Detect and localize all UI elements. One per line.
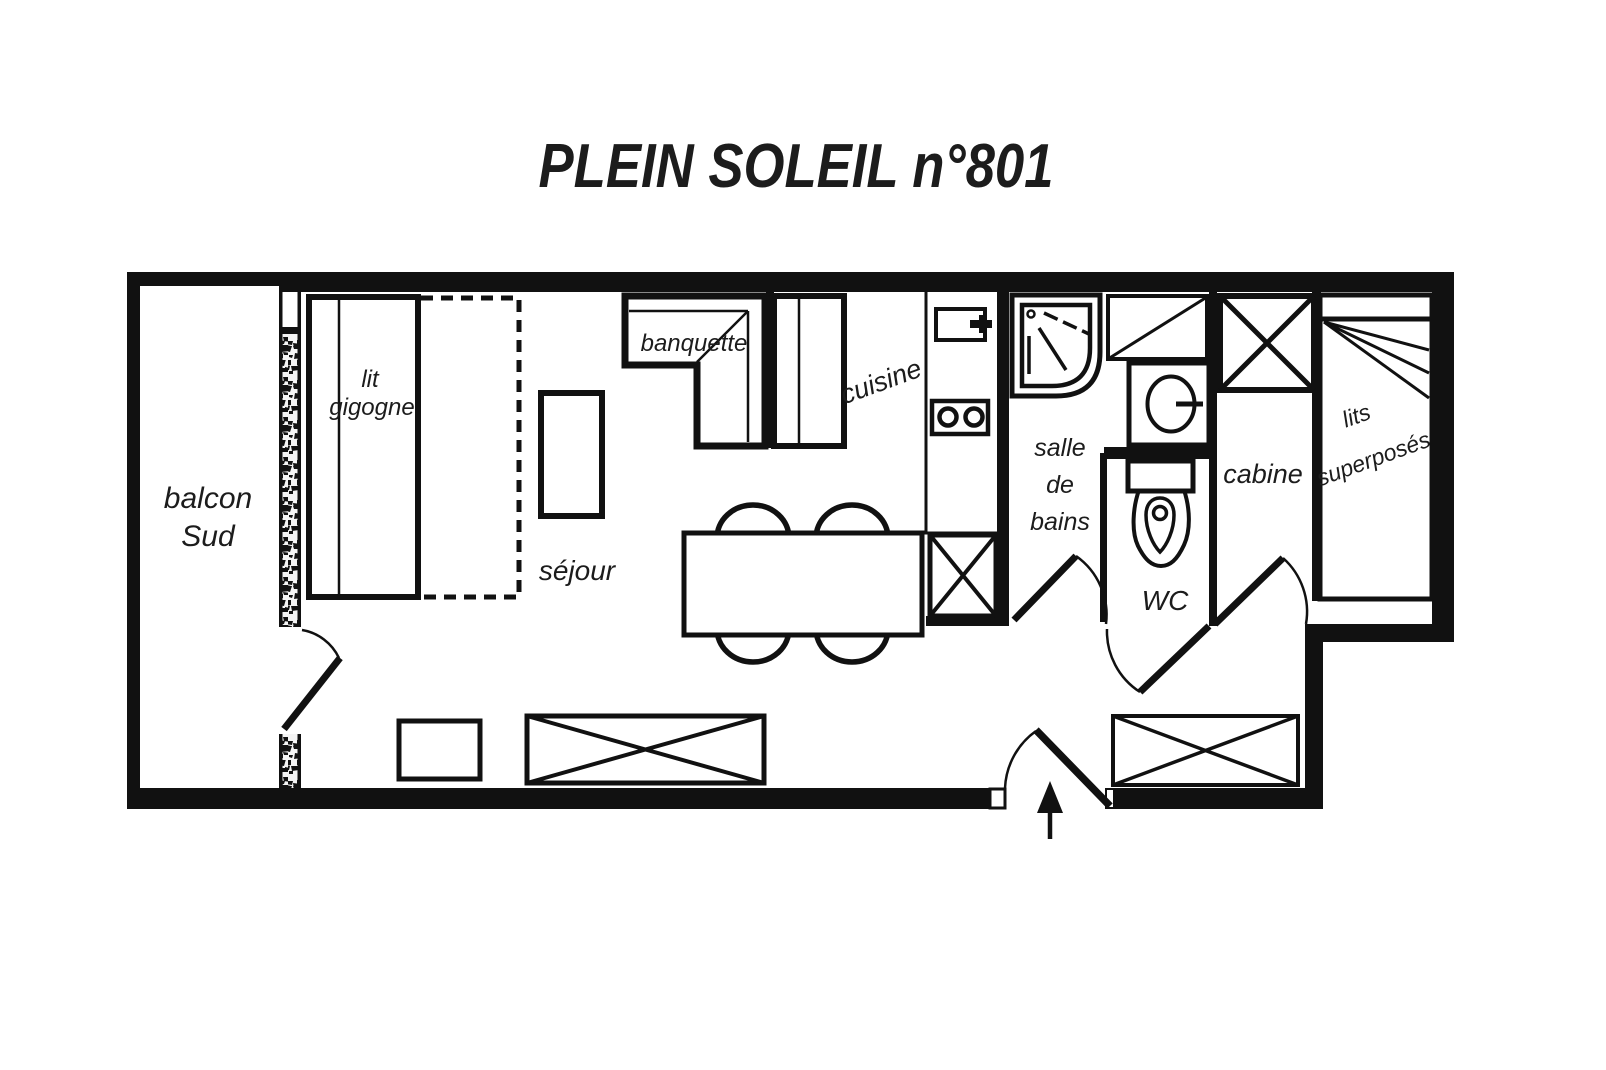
svg-text:bains: bains bbox=[1030, 508, 1090, 536]
svg-text:Sud: Sud bbox=[181, 520, 236, 553]
svg-text:balcon: balcon bbox=[164, 482, 252, 515]
svg-text:séjour: séjour bbox=[539, 555, 617, 586]
svg-text:gigogne: gigogne bbox=[329, 394, 414, 421]
svg-text:banquette: banquette bbox=[641, 330, 748, 357]
svg-text:cabine: cabine bbox=[1223, 459, 1303, 489]
svg-text:WC: WC bbox=[1142, 585, 1189, 616]
svg-text:de: de bbox=[1046, 471, 1074, 499]
svg-text:salle: salle bbox=[1034, 434, 1085, 462]
svg-text:PLEIN SOLEIL n°801: PLEIN SOLEIL n°801 bbox=[539, 132, 1054, 201]
svg-text:lit: lit bbox=[361, 366, 380, 393]
